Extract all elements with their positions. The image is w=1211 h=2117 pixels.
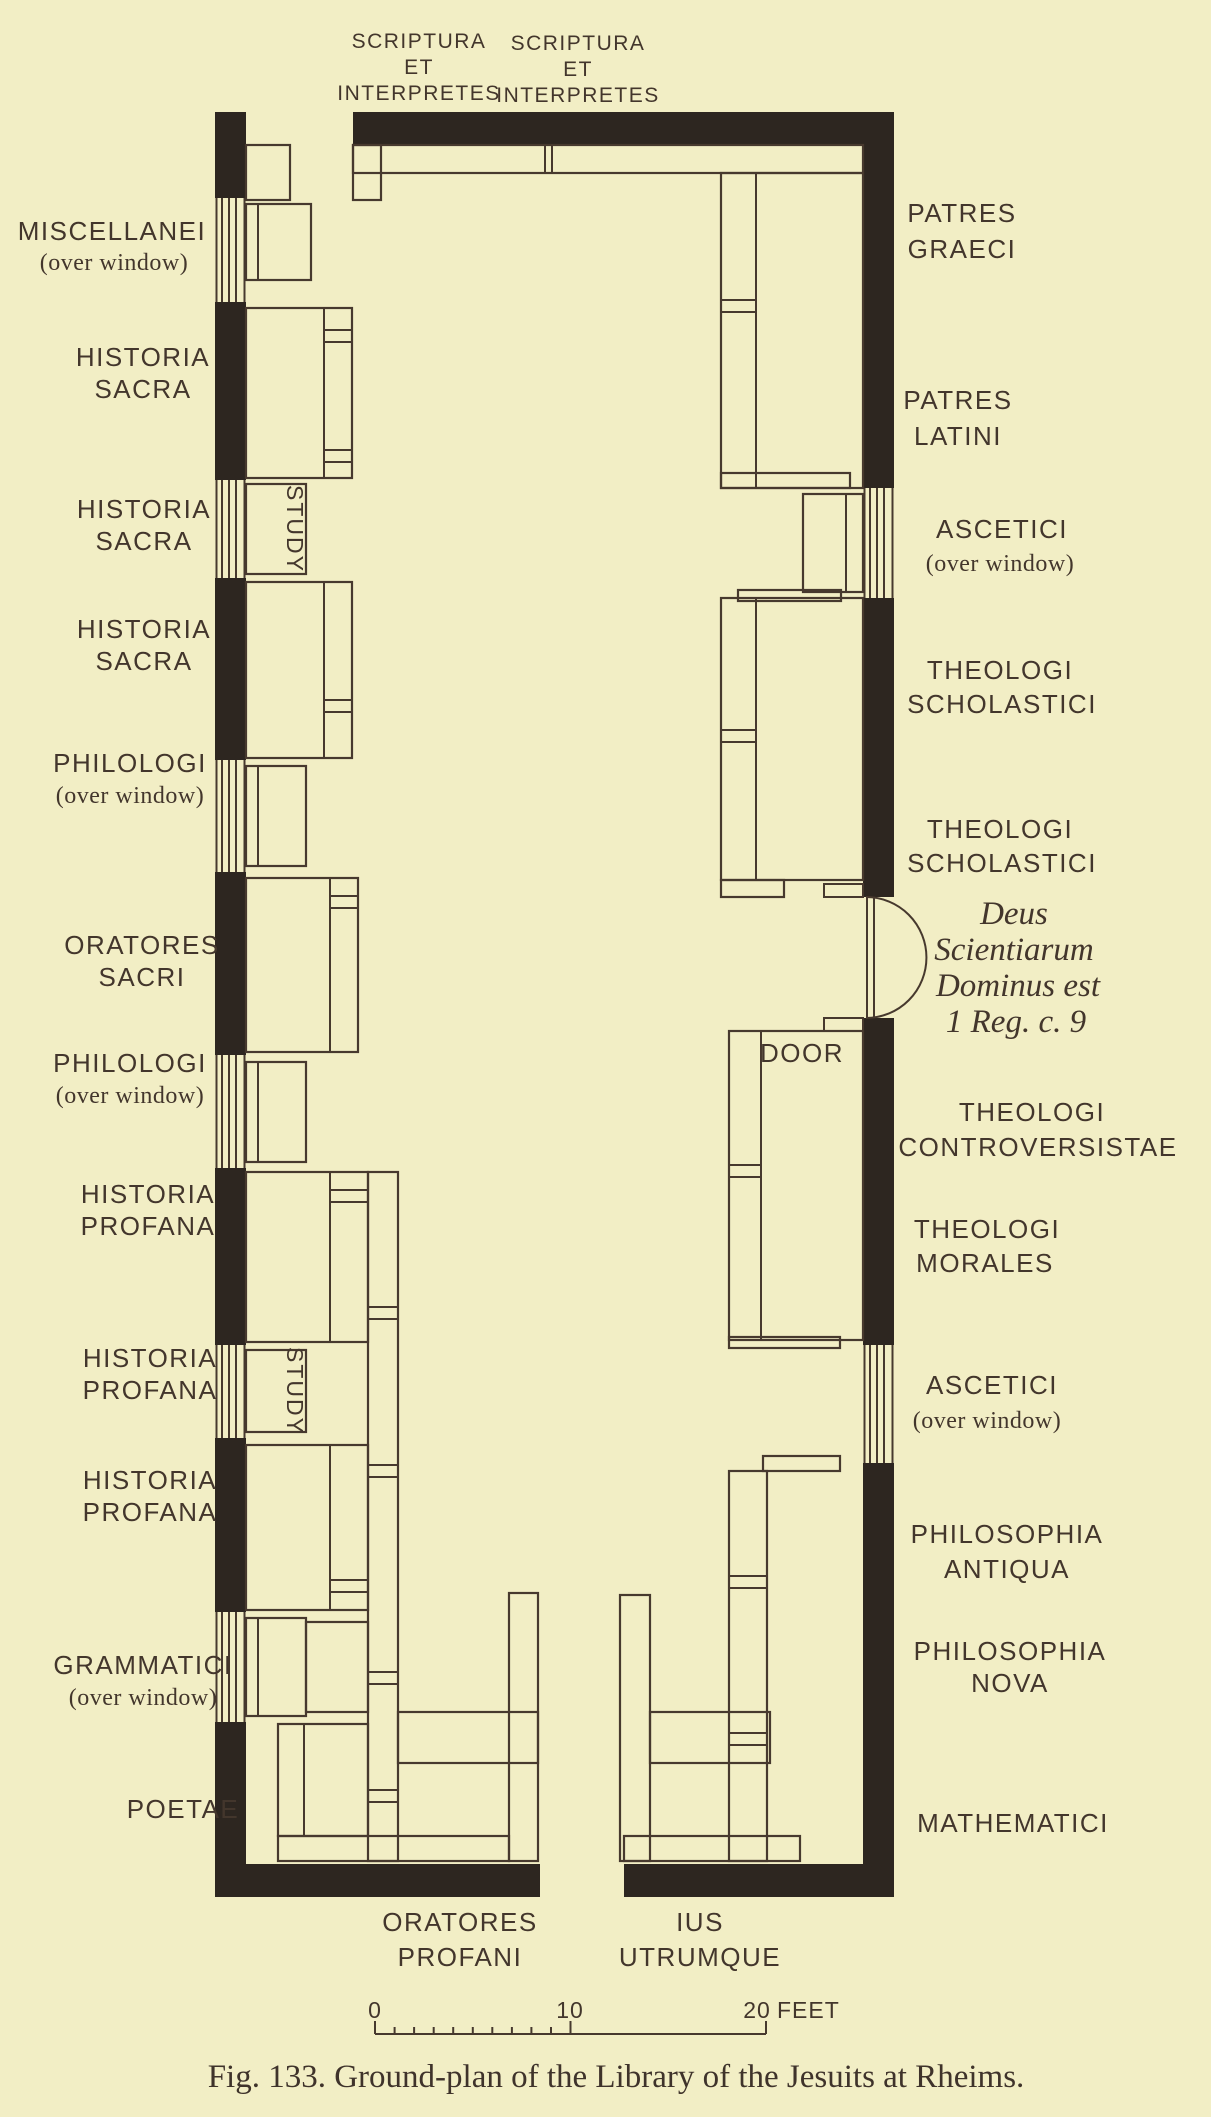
label-study-2: STUDY — [282, 1347, 308, 1435]
label-theologi-scholastici-1b: SCHOLASTICI — [907, 689, 1097, 719]
left-case-4-lines — [330, 1172, 368, 1342]
label-line: INTERPRETES — [337, 82, 501, 105]
left-case-2-lines — [324, 582, 352, 758]
left-wall — [215, 112, 246, 1897]
label-patres-latini-a: PATRES — [903, 385, 1012, 415]
top-bookcase-band — [353, 145, 863, 173]
left-long-band — [368, 1172, 398, 1861]
label-ascetici-2: ASCETICI — [926, 1370, 1058, 1400]
right-case-3-step — [729, 1337, 840, 1348]
label-line: SCRIPTURA — [352, 30, 487, 53]
right-case-3-lines — [729, 1031, 761, 1340]
label-over-window: (over window) — [40, 250, 188, 276]
label-poetae: POETAE — [127, 1794, 240, 1824]
left-case-2 — [246, 582, 352, 758]
label-theologi-scholastici-2a: THEOLOGI — [927, 814, 1073, 844]
label-mathematici: MATHEMATICI — [917, 1808, 1109, 1838]
scale-zero: 0 — [368, 1997, 382, 2023]
scale-bar: 0 10 20 FEET — [368, 1997, 840, 2034]
left-case-1-lines — [324, 308, 352, 478]
label-over-window: (over window) — [926, 551, 1074, 577]
label-theologi-morales-a: THEOLOGI — [914, 1214, 1060, 1244]
right-case-1-step — [721, 473, 850, 488]
label-scriptura-2: SCRIPTURA ET INTERPRETES — [496, 32, 660, 107]
label-patres-graeci-a: PATRES — [907, 198, 1016, 228]
right-case-1-lines — [721, 173, 756, 488]
label-over-window: (over window) — [56, 783, 204, 809]
label-philosophia-antiqua-a: PHILOSOPHIA — [911, 1519, 1104, 1549]
book-page: SCRIPTURA ET INTERPRETES SCRIPTURA ET IN… — [0, 0, 1211, 2117]
left-case-5-lines — [330, 1445, 368, 1610]
label-patres-latini-b: LATINI — [914, 421, 1002, 451]
label-ius-utrumque-b: UTRUMQUE — [619, 1942, 781, 1972]
label-theologi-morales-b: MORALES — [916, 1248, 1054, 1278]
inscription-line: Scientiarum — [934, 932, 1093, 968]
right-case-2-lines — [721, 598, 756, 880]
scale-ten: 10 — [556, 1997, 584, 2023]
label-line: ET — [404, 56, 434, 79]
right-window-case-1 — [803, 494, 863, 592]
bottom-wall — [215, 1864, 894, 1897]
right-case-4-step — [763, 1456, 840, 1471]
top-wall — [353, 112, 894, 145]
label-ius-utrumque-a: IUS — [676, 1907, 724, 1937]
label-oratores-sacri-b: SACRI — [99, 962, 186, 992]
label-historia-sacra-1b: SACRA — [94, 374, 191, 404]
bottom-band-left — [278, 1836, 509, 1861]
left-window-case-3 — [246, 1062, 306, 1162]
figure-caption: Fig. 133. Ground-plan of the Library of … — [208, 2059, 1025, 2095]
label-oratores-profani-b: PROFANI — [398, 1942, 523, 1972]
left-window-case-1 — [246, 204, 311, 280]
label-historia-sacra-3b: SACRA — [95, 646, 192, 676]
left-labels: MISCELLANEI (over window) HISTORIA SACRA… — [18, 216, 240, 1824]
label-over-window: (over window) — [56, 1083, 204, 1109]
door-jamb-bottom — [824, 1018, 863, 1031]
label-scriptura-1: SCRIPTURA ET INTERPRETES — [337, 30, 501, 105]
label-line: SCRIPTURA — [511, 32, 646, 55]
label-philologi-2: PHILOLOGI — [53, 1048, 207, 1078]
inscription-line: Deus — [979, 896, 1048, 932]
label-grammatici: GRAMMATICI — [53, 1650, 232, 1680]
label-historia-sacra-2a: HISTORIA — [77, 494, 211, 524]
label-theologi-controversistae-b: CONTROVERSISTAE — [898, 1132, 1177, 1162]
label-historia-profana-3a: HISTORIA — [83, 1465, 217, 1495]
top-band-divider — [545, 145, 552, 173]
left-case-3 — [246, 878, 358, 1052]
door — [824, 884, 926, 1031]
left-case-4 — [246, 1172, 368, 1342]
label-philosophia-nova-a: PHILOSOPHIA — [914, 1636, 1107, 1666]
inscription-line: 1 Reg. c. 9 — [946, 1004, 1086, 1040]
label-oratores-profani-a: ORATORES — [382, 1907, 538, 1937]
label-ascetici-1: ASCETICI — [936, 514, 1068, 544]
left-case-5 — [246, 1445, 368, 1610]
poetae-case — [278, 1724, 368, 1836]
inscription-line: Dominus est — [935, 968, 1101, 1004]
label-patres-graeci-b: GRAECI — [908, 234, 1017, 264]
vestibule-case-left — [509, 1593, 538, 1861]
label-historia-profana-3b: PROFANA — [83, 1497, 218, 1527]
door-inscription: Deus Scientiarum Dominus est 1 Reg. c. 9 — [934, 896, 1101, 1040]
bottom-left-low-case — [398, 1712, 538, 1763]
label-over-window: (over window) — [69, 1685, 217, 1711]
label-philosophia-nova-b: NOVA — [971, 1668, 1049, 1698]
label-historia-profana-2b: PROFANA — [83, 1375, 218, 1405]
label-line: ET — [563, 58, 593, 81]
right-case-2 — [721, 598, 863, 880]
label-study-1: STUDY — [282, 485, 308, 573]
right-case-2-bottomstep — [721, 880, 784, 897]
label-historia-sacra-1a: HISTORIA — [76, 342, 210, 372]
door-leaf — [867, 897, 874, 1018]
label-oratores-sacri-a: ORATORES — [64, 930, 220, 960]
label-historia-profana-1b: PROFANA — [81, 1211, 216, 1241]
vestibule-case-right — [620, 1595, 650, 1861]
floor-plan-figure: SCRIPTURA ET INTERPRETES SCRIPTURA ET IN… — [0, 0, 1211, 2117]
label-door: DOOR — [760, 1038, 844, 1068]
windows — [217, 198, 893, 1722]
scale-unit: FEET — [777, 1997, 840, 2023]
bookcases — [246, 145, 863, 1861]
left-window-case-4 — [246, 1618, 306, 1716]
door-swing-arc — [866, 897, 926, 1018]
label-historia-profana-1a: HISTORIA — [81, 1179, 215, 1209]
left-window-case-4b — [306, 1622, 368, 1712]
label-historia-sacra-2b: SACRA — [95, 526, 192, 556]
walls — [215, 112, 894, 1897]
left-case-1 — [246, 308, 352, 478]
label-over-window: (over window) — [913, 1408, 1061, 1434]
right-case-3 — [729, 1031, 863, 1340]
right-case-4 — [729, 1471, 767, 1861]
top-left-notch — [246, 145, 290, 200]
label-philosophia-antiqua-b: ANTIQUA — [944, 1554, 1070, 1584]
left-case-3-lines — [330, 878, 358, 1052]
scale-twenty: 20 — [743, 1997, 771, 2023]
right-case-1 — [721, 173, 863, 488]
label-historia-sacra-3a: HISTORIA — [77, 614, 211, 644]
label-theologi-scholastici-1a: THEOLOGI — [927, 655, 1073, 685]
label-theologi-scholastici-2b: SCHOLASTICI — [907, 848, 1097, 878]
left-window-case-2 — [246, 766, 306, 866]
label-historia-profana-2a: HISTORIA — [83, 1343, 217, 1373]
label-philologi-1: PHILOLOGI — [53, 748, 207, 778]
bottom-right-low-case — [650, 1712, 770, 1763]
door-jamb-top — [824, 884, 863, 897]
left-long-band-dividers — [368, 1307, 398, 1802]
label-line: INTERPRETES — [496, 84, 660, 107]
bottom-labels: ORATORES PROFANI IUS UTRUMQUE — [382, 1907, 781, 1972]
label-theologi-controversistae-a: THEOLOGI — [959, 1097, 1105, 1127]
label-miscellanei: MISCELLANEI — [18, 216, 206, 246]
right-case-4-dividers — [729, 1576, 767, 1745]
